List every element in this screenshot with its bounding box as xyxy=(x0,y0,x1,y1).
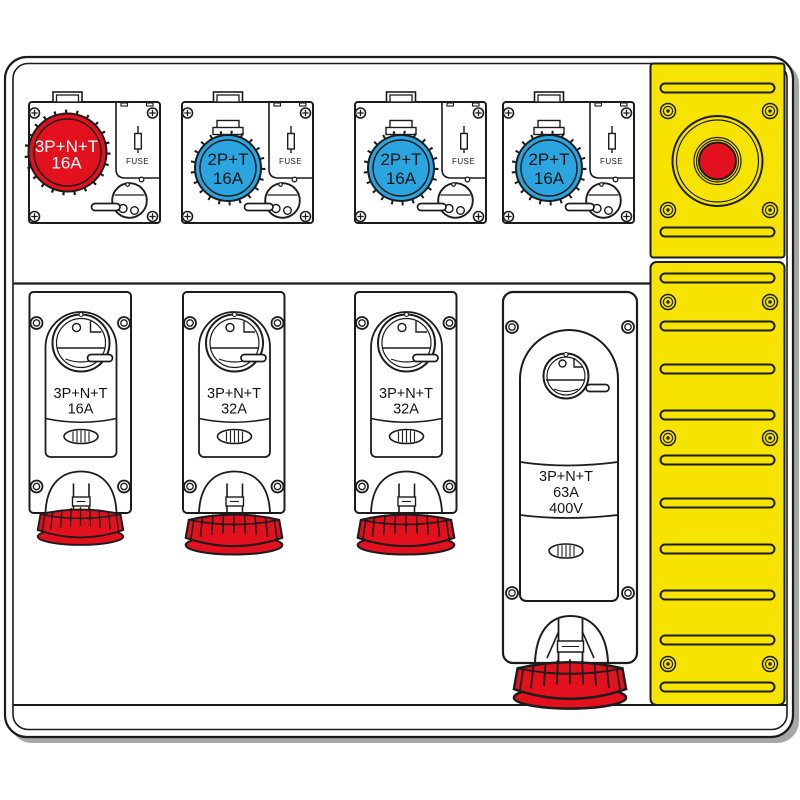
grip-ridges xyxy=(549,544,583,558)
socket-label: 2P+T xyxy=(380,150,421,169)
fused-socket-unit-2: 2P+T 16A FUSE xyxy=(182,92,313,223)
fused-socket-unit-1: 3P+N+T 16A FUSE xyxy=(27,92,161,223)
estop-panel-lower xyxy=(651,262,785,705)
fuse-label: FUSE xyxy=(126,157,149,166)
fused-socket-unit-4: 2P+T 16A FUSE xyxy=(503,92,634,223)
socket-rating: 16A xyxy=(51,154,82,173)
socket-label: 2P+T xyxy=(207,150,248,169)
estop-mushroom-icon[interactable] xyxy=(699,143,736,180)
socket-rating: 32A xyxy=(393,402,419,418)
socket-rating: 16A xyxy=(68,402,94,418)
socket-rating: 16A xyxy=(213,169,244,188)
interlocked-socket-unit-4: 3P+N+T 63A 400V xyxy=(503,292,637,709)
socket-label: 3P+N+T xyxy=(539,469,593,485)
socket-voltage: 400V xyxy=(549,501,583,517)
fused-socket-unit-3: 2P+T 16A FUSE xyxy=(355,92,486,223)
socket-rating: 32A xyxy=(221,402,247,418)
socket-rating: 16A xyxy=(386,169,417,188)
socket-label: 3P+N+T xyxy=(207,386,261,402)
fuse-label: FUSE xyxy=(600,157,623,166)
fuse-label: FUSE xyxy=(279,157,302,166)
interlocked-socket-unit-1: 3P+N+T 16A xyxy=(30,292,132,545)
socket-rating: 63A xyxy=(553,485,579,501)
socket-rating: 16A xyxy=(534,169,565,188)
dial-lever[interactable] xyxy=(586,385,609,392)
board-drawing: 3P+N+T 16A FUSE 2P+T 16A FUSE 2P+T 16A F… xyxy=(0,0,800,800)
emergency-stop-panel xyxy=(651,64,785,706)
socket-label: 3P+N+T xyxy=(54,386,108,402)
socket-label: 2P+T xyxy=(528,150,569,169)
socket-label: 3P+N+T xyxy=(379,386,433,402)
fuse-label: FUSE xyxy=(452,157,475,166)
distribution-board-illustration: 3P+N+T 16A FUSE 2P+T 16A FUSE 2P+T 16A F… xyxy=(0,0,800,800)
